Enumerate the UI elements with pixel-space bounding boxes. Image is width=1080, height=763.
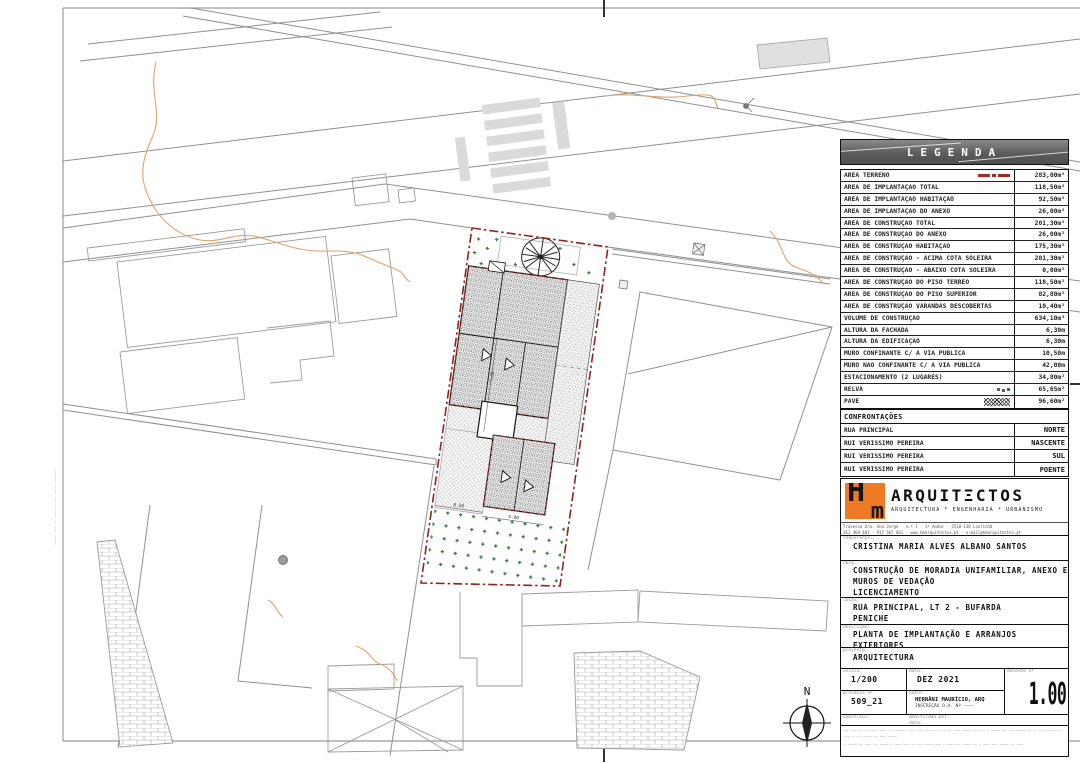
legend-row: ALTURA DA FACHADA6,30m	[841, 325, 1068, 337]
fine-print: –– ––– –– – –––– ––– –– –––– – ––– –– ––…	[841, 726, 1068, 756]
confront-row: RUI VERISSIMO PEREIRANASCENTE	[841, 437, 1068, 450]
work-section: obra: CONSTRUÇÃO DE MORADIA UNIFAMILIAR,…	[841, 561, 1068, 598]
legend-row: ÁREA TERRENO 283,00m²	[841, 170, 1068, 182]
margin-note: ––––– ––– –– –––––– ––– ––––– ––––––	[53, 468, 57, 545]
legend-row: ÁREA DE CONSTRUÇÃO DO ANEXO26,00m²	[841, 229, 1068, 241]
drawing-number: 1.00	[1028, 677, 1066, 712]
location-section: local: RUA PRINCIPAL, LT 2 - BUFARDA PEN…	[841, 598, 1068, 625]
confront-row: RUI VERISSIMO PEREIRASUL	[841, 450, 1068, 463]
pave-symbol	[984, 398, 1010, 406]
terrain-line-symbol	[978, 174, 1010, 177]
legend-row: MURO NÃO CONFINANTE C/ A VIA PÚBLICA42,0…	[841, 360, 1068, 372]
well-symbol	[279, 556, 288, 565]
scale-cell: escala: 1/200	[841, 669, 907, 691]
legend-row: ÁREA DE CONSTRUÇÃO - ACIMA COTA SOLEIRA2…	[841, 253, 1068, 265]
main-house	[449, 266, 568, 419]
legend-row: MURO CONFINANTE C/ A VIA PÚBLICA10,50m	[841, 348, 1068, 360]
legend-row: ÁREA DE CONSTRUÇÃO VARANDAS DESCOBERTAS1…	[841, 301, 1068, 313]
author-cell: autor: HERNÂNI MAURÍCIO, ARQ INSCRIÇÃO O…	[907, 691, 1005, 715]
date-cell: data: DEZ 2021	[907, 669, 1005, 691]
process-number: 509_21	[841, 697, 906, 706]
numbers-grid: escala: 1/200 data: DEZ 2021 desenho nº …	[841, 669, 1068, 715]
legend-row: ALTURA DA EDIFICAÇÃO6,30m	[841, 336, 1068, 348]
legend-row: ÁREA DE IMPLANTAÇÃO HABITAÇÃO92,50m²	[841, 194, 1068, 206]
client-section: requerente: CRISTINA MARIA ALVES ALBANO …	[841, 536, 1068, 561]
project-section: projecto: ARQUITECTURA	[841, 648, 1068, 670]
process-cell: processo nº 509_21	[841, 691, 907, 715]
legend-row: PAVÊ 96,60m²	[841, 396, 1068, 408]
north-label: N	[804, 685, 811, 698]
confront-row: RUI VERISSIMO PEREIRAPOENTE	[841, 463, 1068, 476]
legend-row: ÁREA DE CONSTRUÇÃO HABITAÇÃO175,30m²	[841, 241, 1068, 253]
legend-row: ÁREA DE IMPLANTAÇÃO DO ANEXO26,00m²	[841, 206, 1068, 218]
revision-row: substitui: modificado por: data:	[841, 715, 1068, 726]
drawing-number-cell: desenho nº 1.00	[1005, 669, 1068, 715]
legend-row: ÁREA DE CONSTRUÇÃO DO PISO TÉRREO118,50m…	[841, 277, 1068, 289]
confrontacoes-header: CONFRONTAÇÕES	[841, 410, 1068, 424]
legend-table: ÁREA TERRENO 283,00m² ÁREA DE IMPLANTAÇÃ…	[840, 169, 1069, 409]
title-block: H m ARQUITΞCTOS ARQUITECTURA * ENGENHARI…	[840, 478, 1069, 757]
confront-row: RUA PRINCIPALNORTE	[841, 424, 1068, 437]
confrontacoes-table: CONFRONTAÇÕES RUA PRINCIPALNORTE RUI VER…	[840, 408, 1069, 477]
date-value: DEZ 2021	[907, 675, 1004, 684]
firm-tagline: ARQUITECTURA * ENGENHARIA * URBANISMO	[891, 507, 1043, 513]
legend-row: ÁREA DE CONSTRUÇÃO DO PISO SUPERIOR82,80…	[841, 289, 1068, 301]
relva-symbol	[997, 386, 1010, 392]
manhole-symbol	[608, 212, 616, 220]
legend-row: VOLUME DE CONSTRUÇÃO634,10m³	[841, 313, 1068, 325]
firm-logo: H m	[845, 483, 885, 519]
description-section: descrição: PLANTA DE IMPLANTAÇÃO E ARRAN…	[841, 625, 1068, 648]
legend-row: ÁREA DE IMPLANTAÇÃO TOTAL118,50m²	[841, 182, 1068, 194]
scale-value: 1/200	[841, 675, 906, 684]
legend-row: ÁREA DE CONSTRUÇÃO - ABAIXO COTA SOLEIRA…	[841, 265, 1068, 277]
firm-name: ARQUITΞCTOS	[891, 488, 1043, 504]
legend-title: LEGENDA	[907, 146, 1002, 159]
firm-address: Travessa Dra. Ana Jorge · n.º 1 · 1º And…	[841, 522, 1068, 536]
legend-header: LEGENDA	[840, 139, 1069, 165]
legend-row: RELVA 65,65m²	[841, 384, 1068, 396]
legend-row: ÁREA DE CONSTRUÇÃO TOTAL201,30m²	[841, 218, 1068, 230]
legend-row: ESTACIONAMENTO (2 LUGARES)34,80m²	[841, 372, 1068, 384]
client-name: CRISTINA MARIA ALVES ALBANO SANTOS	[841, 542, 1068, 553]
firm-logo-section: H m ARQUITΞCTOS ARQUITECTURA * ENGENHARI…	[841, 479, 1068, 522]
drawing-sheet: 8.50 4.00 7.00 N ––––– ––– –– –––––– –––…	[0, 0, 1080, 763]
